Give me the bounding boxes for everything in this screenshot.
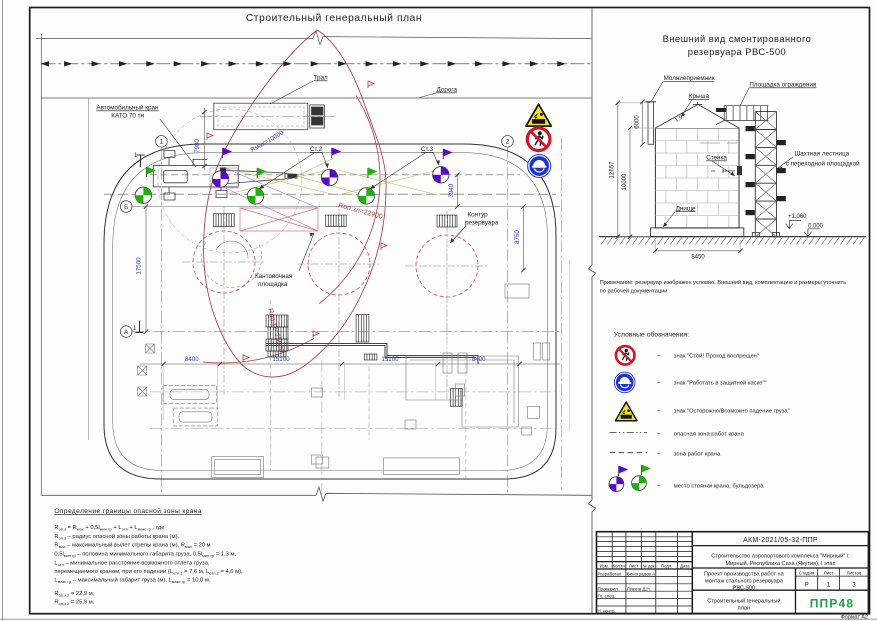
svg-text:Проверил: Проверил [598, 586, 619, 591]
svg-text:Проект производства работ на: Проект производства работ на [704, 572, 785, 578]
svg-text:монтаж стального резервуара: монтаж стального резервуара [705, 579, 784, 585]
svg-text:+1.060: +1.060 [788, 214, 807, 220]
svg-text:резервуара: резервуара [465, 220, 499, 227]
svg-text:8400: 8400 [472, 356, 486, 363]
svg-text:Дорога: Дорога [437, 87, 458, 94]
svg-text:РВС-500: РВС-500 [733, 585, 756, 591]
svg-text:место стоянки крана, бульдозер: место стоянки крана, бульдозера [674, 484, 765, 490]
svg-text:знак "Осторожно/Возможно паден: знак "Осторожно/Возможно падение груза" [674, 409, 790, 415]
svg-text:Крыша: Крыша [689, 93, 710, 100]
svg-text:Виноградов А.: Виноградов А. [627, 572, 656, 577]
svg-text:с переходной площадкой: с переходной площадкой [786, 159, 860, 167]
svg-text:6000: 6000 [634, 115, 640, 129]
svg-text:Лист: Лист [824, 570, 835, 575]
svg-text:Дата: Дата [680, 563, 690, 568]
svg-text:Стадия: Стадия [799, 570, 815, 575]
svg-text:Площадка ограждения: Площадка ограждения [749, 82, 816, 89]
svg-text:Лист: Лист [629, 563, 638, 568]
svg-text:Разработал: Разработал [598, 572, 622, 577]
svg-text:Внешний вид смонтированного: Внешний вид смонтированного [663, 34, 812, 44]
svg-text:Молниеприемник: Молниеприемник [664, 75, 715, 82]
svg-text:АКМ-2021/05-32-ППР: АКМ-2021/05-32-ППР [743, 537, 818, 544]
svg-text:8400: 8400 [185, 356, 199, 363]
svg-text:Трал: Трал [314, 75, 328, 82]
svg-text:зона работ крана: зона работ крана [674, 452, 721, 458]
svg-text:Строительный генеральный: Строительный генеральный [707, 598, 780, 605]
svg-text:Rоп.з.2 = 25,9 м.: Rоп.з.2 = 25,9 м. [54, 600, 94, 607]
svg-text:Б: Б [124, 204, 128, 211]
svg-text:№ док: № док [642, 563, 654, 568]
svg-text:Кантовочная: Кантовочная [255, 273, 292, 280]
svg-text:план: план [738, 606, 751, 612]
svg-text:ППР48: ППР48 [810, 597, 855, 611]
svg-text:Контур: Контур [468, 211, 489, 218]
svg-text:1: 1 [160, 139, 164, 146]
svg-text:КАТО 70 тн: КАТО 70 тн [111, 112, 144, 119]
svg-text:знак "Стой! Проход воспрещен": знак "Стой! Проход воспрещен" [674, 353, 759, 360]
svg-text:Строительство аэропортового ко: Строительство аэропортового комплекса "М… [711, 553, 850, 560]
svg-text:Lмакс гр – максимальный габари: Lмакс гр – максимальный габарит груза (м… [54, 576, 210, 584]
svg-text:Гл. спец.: Гл. спец. [598, 594, 616, 599]
svg-text:8750: 8750 [514, 230, 521, 244]
svg-text:Изм.: Изм. [600, 563, 609, 568]
svg-text:Кол.уч: Кол.уч [613, 563, 626, 568]
svg-text:17500: 17500 [136, 257, 143, 275]
svg-text:Rоп.з – радиус опасной зоны ра: Rоп.з – радиус опасной зоны работы крана… [54, 533, 179, 541]
svg-text:Rоп.з.1 = 22,9 м,: Rоп.з.1 = 22,9 м, [54, 591, 94, 598]
svg-text:Ст.3: Ст.3 [421, 146, 433, 153]
svg-text:Lотл – минимальное расстоя: Lотл – минимальное расстояние возможного… [54, 560, 210, 567]
svg-text:Ст.2: Ст.2 [310, 146, 322, 153]
svg-text:Примечание: резервуар изображе: Примечание: резервуар изображен условно.… [600, 279, 846, 286]
svg-text:8450: 8450 [691, 255, 705, 261]
svg-text:Стенка: Стенка [706, 155, 727, 162]
svg-text:знак "Работать в защитной каск: знак "Работать в защитной каске"" [674, 380, 767, 387]
svg-text:Строительный генеральный план: Строительный генеральный план [246, 13, 422, 24]
svg-text:Шахтная лестница: Шахтная лестница [795, 151, 850, 158]
svg-text:0,5lмин гр – половина минималь: 0,5lмин гр – половина минимального габар… [54, 552, 236, 559]
svg-text:Формат А2: Формат А2 [841, 615, 868, 621]
svg-text:15100: 15100 [272, 356, 290, 363]
svg-text:опасная зона работ крана: опасная зона работ крана [674, 432, 745, 438]
svg-text:перемещаемого краном, при его: перемещаемого краном, при его падении (L… [54, 569, 243, 576]
svg-text:Rоп.з = Rмах + 0,5lмин гр + Lо: Rоп.з = Rмах + 0,5lмин гр + Lотл + Lмакс… [54, 525, 164, 532]
svg-text:Автомобильный кран: Автомобильный кран [96, 104, 159, 112]
svg-text:Условные обозначения:: Условные обозначения: [614, 331, 689, 339]
svg-text:0.000: 0.000 [808, 224, 824, 230]
svg-text:Р: Р [805, 583, 809, 589]
svg-text:3940: 3940 [448, 183, 455, 197]
svg-text:А: А [124, 329, 129, 336]
svg-text:Лункин Д.Н.: Лункин Д.Н. [627, 586, 651, 591]
svg-text:Мирный, Республика Саха (Якути: Мирный, Республика Саха (Якутия), I этап [725, 560, 835, 567]
svg-text:7980: 7980 [194, 139, 201, 153]
svg-text:15100: 15100 [381, 356, 399, 363]
svg-text:Определение границы опасной зо: Определение границы опасной зоны крана [54, 507, 202, 515]
svg-text:Н. контр.: Н. контр. [598, 608, 616, 613]
svg-text:10000: 10000 [622, 173, 628, 190]
svg-text:площадка: площадка [258, 281, 288, 288]
svg-text:Листов: Листов [847, 570, 862, 575]
svg-text:по рабочей документации: по рабочей документации [600, 287, 668, 294]
svg-text:2: 2 [506, 139, 510, 146]
svg-text:Днище: Днище [676, 205, 696, 212]
svg-text:резервуара РВС-500: резервуара РВС-500 [688, 47, 786, 57]
svg-text:12657: 12657 [610, 161, 616, 178]
svg-text:Подп.: Подп. [661, 563, 672, 568]
